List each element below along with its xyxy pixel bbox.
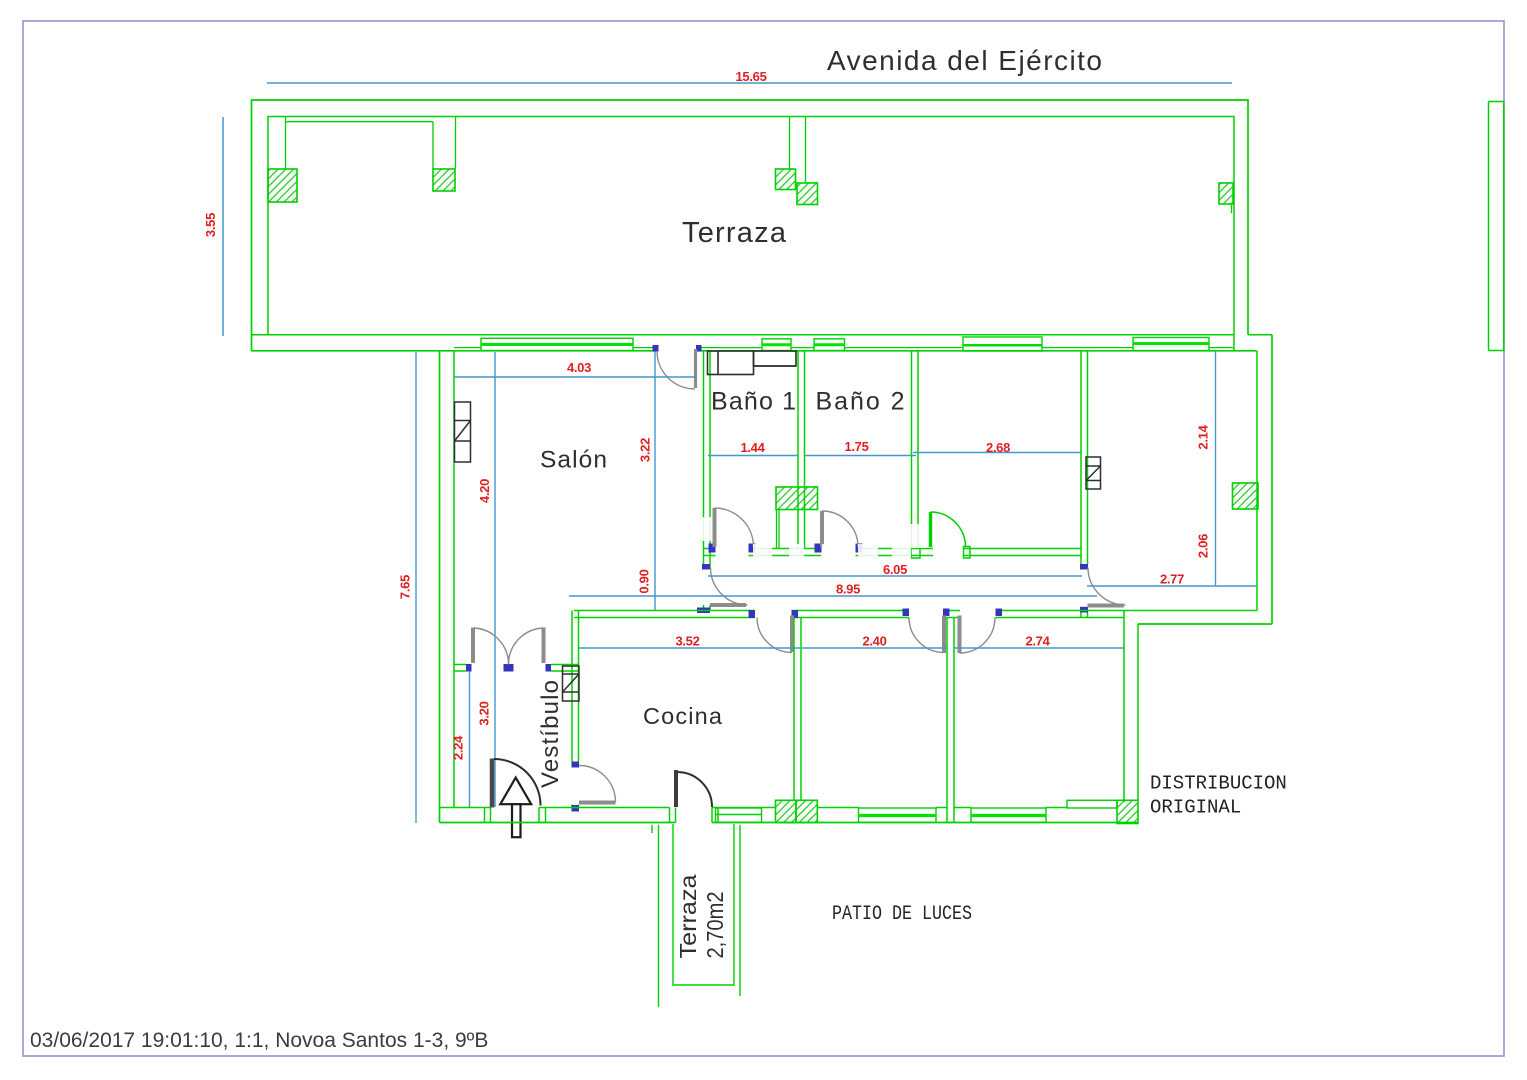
svg-text:1.75: 1.75 (844, 439, 868, 454)
svg-text:DISTRIBUCION: DISTRIBUCION (1150, 773, 1287, 795)
svg-text:2.40: 2.40 (862, 634, 886, 649)
svg-text:1.44: 1.44 (740, 440, 765, 455)
svg-text:2.74: 2.74 (1025, 634, 1050, 649)
svg-text:PATIO DE LUCES: PATIO DE LUCES (832, 903, 972, 926)
svg-text:4.03: 4.03 (567, 360, 591, 375)
svg-text:6.05: 6.05 (883, 562, 907, 577)
svg-text:3.52: 3.52 (675, 634, 699, 649)
svg-text:ORIGINAL: ORIGINAL (1150, 797, 1241, 819)
svg-text:2.24: 2.24 (451, 735, 466, 760)
svg-text:2.68: 2.68 (986, 440, 1010, 455)
svg-text:8.95: 8.95 (836, 582, 860, 597)
svg-text:3.20: 3.20 (477, 701, 492, 725)
svg-text:Terraza: Terraza (675, 874, 701, 958)
svg-text:Cocina: Cocina (643, 703, 723, 729)
svg-text:2.77: 2.77 (1160, 572, 1184, 587)
svg-text:Baño 1: Baño 1 (711, 388, 796, 416)
svg-text:Terraza: Terraza (682, 217, 787, 249)
svg-text:Vestíbulo: Vestíbulo (537, 680, 564, 788)
svg-text:03/06/2017 19:01:10, 1:1, Novo: 03/06/2017 19:01:10, 1:1, Novoa Santos 1… (30, 1029, 488, 1052)
svg-text:15.65: 15.65 (735, 69, 766, 84)
svg-text:2.06: 2.06 (1196, 534, 1211, 558)
svg-text:Salón: Salón (540, 447, 607, 474)
svg-text:3.55: 3.55 (203, 213, 218, 237)
svg-text:Baño 2: Baño 2 (816, 388, 905, 416)
svg-text:0.90: 0.90 (637, 569, 652, 593)
svg-text:7.65: 7.65 (398, 575, 413, 599)
svg-text:2.14: 2.14 (1196, 424, 1211, 449)
svg-text:4.20: 4.20 (477, 479, 492, 503)
svg-text:3.22: 3.22 (638, 438, 653, 462)
svg-text:Avenida del Ejército: Avenida del Ejército (827, 45, 1102, 76)
svg-text:2,70m2: 2,70m2 (702, 892, 728, 959)
